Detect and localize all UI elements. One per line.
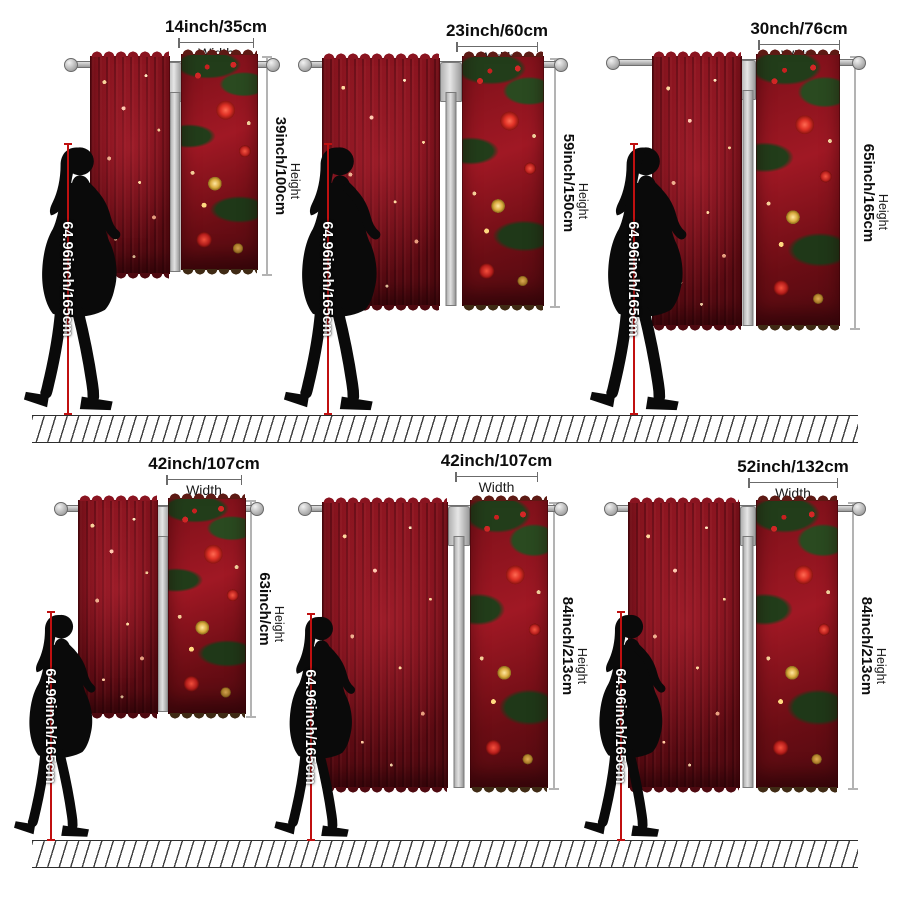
height-caption: Height xyxy=(876,194,890,230)
width-dimension-label: 23inch/60cm xyxy=(446,22,548,41)
woman-figure-icon xyxy=(8,612,108,840)
curtain-panel-right xyxy=(168,498,246,714)
width-dimension: 42inch/107cm Width xyxy=(455,452,538,495)
width-dimension-line xyxy=(166,479,242,480)
width-dimension-label: 30nch/76cm xyxy=(750,20,847,39)
height-dimension-line xyxy=(554,58,556,308)
size-chart-page: { "captions": { "width": "Width", "heigh… xyxy=(0,0,900,900)
height-dimension-line xyxy=(553,502,555,790)
woman-silhouette: 64.96inch/165cm xyxy=(584,144,700,414)
height-dimension-label: 84inch/213cm xyxy=(559,597,576,695)
width-dimension-line xyxy=(456,46,538,47)
height-dimension-line xyxy=(854,56,856,330)
woman-height-label: 64.96inch/165cm xyxy=(319,221,335,336)
curtain-panel-right xyxy=(462,56,544,306)
woman-silhouette: 64.96inch/165cm xyxy=(18,144,134,414)
woman-figure-icon xyxy=(18,144,134,414)
woman-height-label: 64.96inch/165cm xyxy=(42,668,58,783)
curtain-panel-right xyxy=(756,500,838,788)
woman-silhouette: 64.96inch/165cm xyxy=(8,612,108,840)
width-dimension-line xyxy=(455,476,538,477)
curtain-panel-right xyxy=(181,54,258,270)
width-dimension-line xyxy=(178,42,254,43)
curtain-panel-right xyxy=(470,500,548,788)
width-dimension-label: 42inch/107cm xyxy=(441,452,553,471)
woman-figure-icon xyxy=(278,144,394,414)
width-dimension-line xyxy=(748,482,838,483)
woman-height-label: 64.96inch/165cm xyxy=(625,221,641,336)
woman-figure-icon xyxy=(584,144,700,414)
height-dimension-line xyxy=(250,500,252,718)
woman-figure-icon xyxy=(268,614,368,840)
height-dimension: 65inch/165cm Height xyxy=(854,56,888,330)
width-dimension-line xyxy=(758,44,840,45)
height-caption: Height xyxy=(874,648,888,684)
width-dimension-label: 52inch/132cm xyxy=(737,458,849,477)
woman-figure-icon xyxy=(578,612,678,840)
ground-hatch xyxy=(32,840,858,868)
width-dimension-label: 14inch/35cm xyxy=(165,18,267,37)
width-dimension-label: 42inch/107cm xyxy=(148,455,260,474)
curtain-panel-right xyxy=(756,54,840,326)
woman-height-label: 64.96inch/165cm xyxy=(612,668,628,783)
height-dimension: 59inch/150cm Height xyxy=(554,58,588,308)
woman-height-label: 64.96inch/165cm xyxy=(302,669,318,784)
height-dimension-line xyxy=(266,56,268,276)
ground-hatch xyxy=(32,415,858,443)
woman-silhouette: 64.96inch/165cm xyxy=(278,144,394,414)
height-dimension-label: 84inch/213cm xyxy=(858,597,875,695)
height-dimension: 84inch/213cm Height xyxy=(852,502,886,790)
woman-silhouette: 64.96inch/165cm xyxy=(578,612,678,840)
curtain-rod-bracket xyxy=(440,62,462,306)
woman-silhouette: 64.96inch/165cm xyxy=(268,614,368,840)
curtain-rod-bracket xyxy=(448,506,470,788)
woman-height-label: 64.96inch/165cm xyxy=(59,221,75,336)
curtain-rod-bracket xyxy=(740,506,756,788)
curtain-rod-bracket xyxy=(740,60,756,326)
height-dimension-label: 65inch/165cm xyxy=(860,144,877,242)
width-caption: Width xyxy=(479,480,515,495)
height-dimension-label: 59inch/150cm xyxy=(560,134,577,232)
height-dimension-line xyxy=(852,502,854,790)
